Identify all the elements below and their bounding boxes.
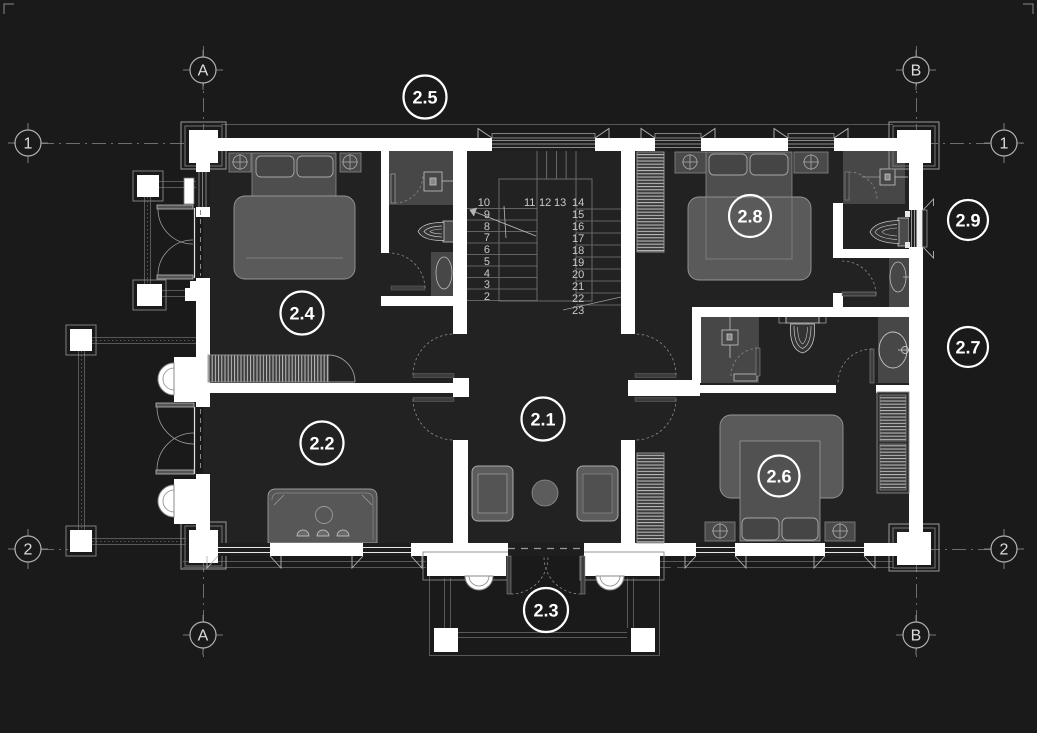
svg-text:2: 2 [484,291,490,303]
svg-text:2.8: 2.8 [737,207,762,227]
svg-text:2: 2 [1000,542,1009,559]
svg-text:B: B [911,628,922,645]
svg-text:3: 3 [484,279,490,291]
svg-text:A: A [198,628,209,645]
svg-text:B: B [911,63,922,80]
svg-text:9: 9 [484,209,490,221]
svg-text:18: 18 [572,245,584,257]
svg-text:2.5: 2.5 [412,88,437,108]
svg-text:1: 1 [24,136,33,153]
svg-text:15: 15 [572,209,584,221]
svg-text:17: 17 [572,233,584,245]
svg-text:2.2: 2.2 [309,434,334,454]
svg-text:2.6: 2.6 [766,467,791,487]
svg-text:2.4: 2.4 [289,304,314,324]
svg-text:12: 12 [539,197,551,209]
svg-text:2.9: 2.9 [955,211,980,231]
svg-text:11: 11 [524,197,535,209]
svg-text:2.3: 2.3 [533,601,558,621]
svg-text:23: 23 [572,305,584,317]
svg-text:21: 21 [572,281,584,293]
svg-text:1: 1 [1000,136,1009,153]
svg-text:2.7: 2.7 [955,338,980,358]
svg-text:2.1: 2.1 [530,410,555,430]
svg-text:10: 10 [478,197,490,209]
svg-text:13: 13 [554,197,566,209]
svg-text:14: 14 [572,197,584,209]
svg-text:A: A [198,63,209,80]
svg-text:16: 16 [572,221,584,233]
svg-text:5: 5 [484,256,490,268]
svg-text:20: 20 [572,269,584,281]
svg-text:6: 6 [484,244,490,256]
svg-text:7: 7 [484,232,490,244]
svg-text:22: 22 [572,293,584,305]
svg-text:2: 2 [24,542,33,559]
svg-text:19: 19 [572,257,584,269]
